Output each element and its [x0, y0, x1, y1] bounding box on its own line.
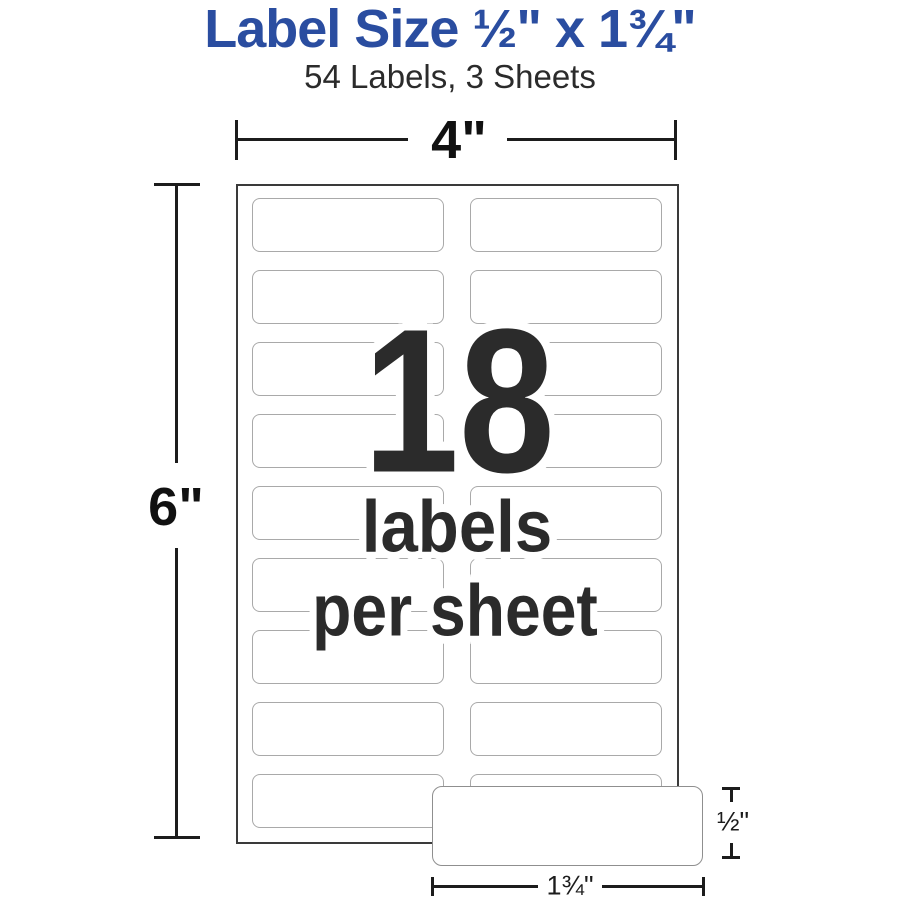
sheet-width-dim-line-left [237, 138, 408, 141]
label-width-dim-line-left [434, 885, 538, 888]
sheet-width-dim-line-right [507, 138, 675, 141]
sheet-label [252, 702, 444, 756]
sheet-height-dim-cap-bottom [154, 836, 200, 839]
label-height-value: ½" [717, 809, 749, 836]
sheet-label [470, 198, 662, 252]
sheet-height-value: 6" [148, 480, 204, 534]
labels-count: 18 [363, 299, 555, 504]
page-subtitle: 54 Labels, 3 Sheets [0, 60, 900, 95]
enlarged-single-label [432, 786, 703, 866]
sheet-label [470, 702, 662, 756]
label-height-dim-bottom-stem [730, 843, 733, 856]
label-height-dim-bottom-tick [722, 856, 740, 859]
label-height-dim-top-stem [730, 789, 733, 802]
label-width-dim-line-right [602, 885, 703, 888]
label-product-diagram: Label Size ½" x 1¾" 54 Labels, 3 Sheets … [0, 0, 900, 900]
sheet-label [252, 198, 444, 252]
sheet-width-value: 4" [431, 113, 487, 167]
label-width-value: 1¾" [546, 873, 593, 900]
sheet-height-dim-line-bottom [175, 548, 178, 836]
sheet-label [252, 774, 444, 828]
page-title: Label Size ½" x 1¾" [0, 1, 900, 58]
labels-caption-line2: per sheet [312, 575, 598, 648]
sheet-height-dim-line-top [175, 186, 178, 463]
labels-caption-line1: labels [362, 491, 552, 564]
